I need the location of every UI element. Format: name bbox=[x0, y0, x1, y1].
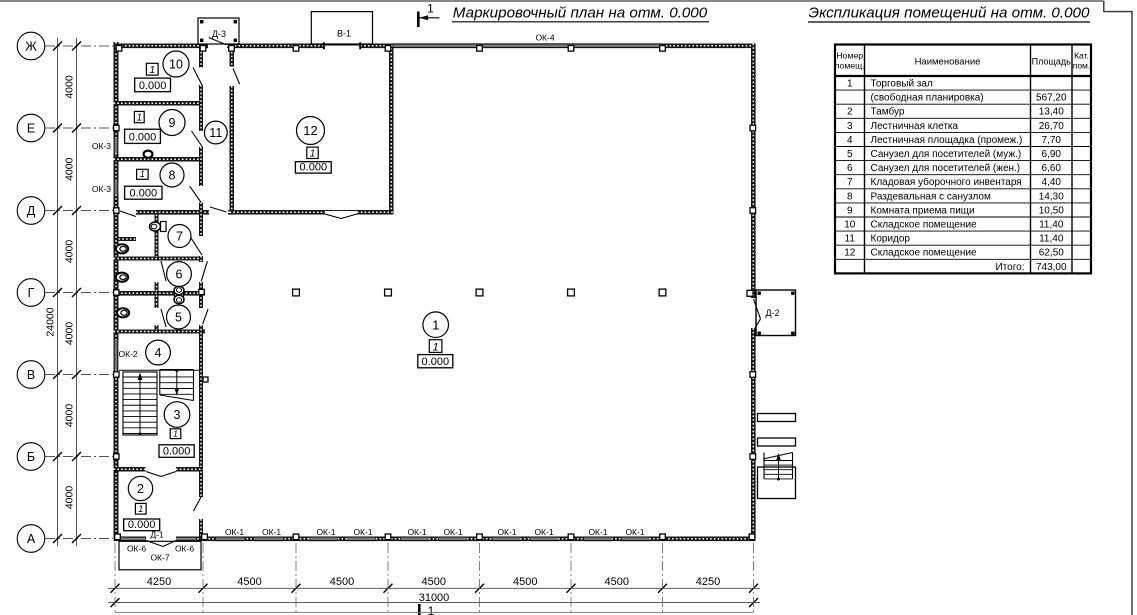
svg-text:Санузел для посетителей (муж.): Санузел для посетителей (муж.) bbox=[871, 149, 1022, 160]
svg-text:6: 6 bbox=[176, 268, 183, 282]
svg-text:1: 1 bbox=[428, 604, 435, 615]
svg-text:Санузел для посетителей (жен.): Санузел для посетителей (жен.) bbox=[871, 163, 1021, 174]
svg-text:1: 1 bbox=[310, 148, 316, 159]
svg-text:5: 5 bbox=[847, 149, 853, 160]
svg-text:ОК-1: ОК-1 bbox=[316, 527, 335, 537]
svg-text:Д-3: Д-3 bbox=[212, 29, 226, 39]
svg-text:ОК-1: ОК-1 bbox=[625, 527, 644, 537]
svg-text:62,50: 62,50 bbox=[1039, 248, 1064, 259]
svg-text:ОК-1: ОК-1 bbox=[353, 527, 372, 537]
svg-text:0.000: 0.000 bbox=[163, 446, 191, 458]
svg-text:3: 3 bbox=[847, 121, 853, 132]
svg-text:4000: 4000 bbox=[64, 322, 76, 346]
svg-text:4: 4 bbox=[847, 135, 853, 146]
svg-text:1: 1 bbox=[432, 341, 438, 353]
svg-text:13,40: 13,40 bbox=[1039, 107, 1064, 118]
svg-text:Кат.: Кат. bbox=[1074, 51, 1089, 61]
svg-text:1: 1 bbox=[173, 429, 178, 439]
svg-text:4500: 4500 bbox=[513, 576, 537, 588]
svg-text:9: 9 bbox=[847, 205, 853, 216]
svg-text:Складское помещение: Складское помещение bbox=[871, 220, 978, 231]
svg-text:7,70: 7,70 bbox=[1042, 135, 1062, 146]
svg-text:14,30: 14,30 bbox=[1039, 191, 1064, 202]
svg-text:11,40: 11,40 bbox=[1039, 234, 1064, 245]
svg-text:4: 4 bbox=[155, 346, 162, 360]
svg-text:4,40: 4,40 bbox=[1042, 177, 1062, 188]
svg-text:ОК-1: ОК-1 bbox=[497, 527, 516, 537]
svg-text:ОК-4: ОК-4 bbox=[535, 33, 554, 43]
svg-text:ОК-2: ОК-2 bbox=[119, 349, 138, 359]
svg-text:Г: Г bbox=[28, 286, 35, 300]
svg-text:ОК-1: ОК-1 bbox=[588, 527, 607, 537]
svg-text:5: 5 bbox=[175, 311, 182, 325]
svg-text:31000: 31000 bbox=[419, 592, 450, 604]
svg-text:Е: Е bbox=[27, 121, 35, 135]
svg-text:1: 1 bbox=[427, 2, 434, 16]
svg-text:Маркировочный план на отм. 0.0: Маркировочный план на отм. 0.000 bbox=[453, 5, 708, 22]
svg-text:3: 3 bbox=[174, 408, 181, 422]
svg-text:6: 6 bbox=[847, 163, 853, 174]
svg-text:Лестничная клетка: Лестничная клетка bbox=[871, 121, 959, 132]
svg-text:Д-2: Д-2 bbox=[765, 308, 779, 318]
svg-text:4000: 4000 bbox=[64, 157, 76, 181]
svg-text:ОК-1: ОК-1 bbox=[262, 527, 281, 537]
svg-text:Кладовая уборочного инвентаря: Кладовая уборочного инвентаря bbox=[871, 176, 1022, 188]
svg-text:2: 2 bbox=[847, 107, 853, 118]
svg-text:Экспликация помещений на отм.: Экспликация помещений на отм. 0.000 bbox=[809, 5, 1090, 22]
svg-text:1: 1 bbox=[432, 317, 439, 332]
svg-text:4500: 4500 bbox=[237, 576, 261, 588]
svg-text:8: 8 bbox=[169, 169, 176, 183]
svg-text:4000: 4000 bbox=[64, 486, 76, 510]
svg-text:0.000: 0.000 bbox=[300, 161, 328, 173]
svg-text:0.000: 0.000 bbox=[422, 356, 450, 368]
svg-text:ОК-3: ОК-3 bbox=[92, 184, 111, 194]
svg-text:ОК-1: ОК-1 bbox=[225, 527, 244, 537]
svg-text:Торговый зал: Торговый зал bbox=[871, 79, 933, 90]
svg-text:1: 1 bbox=[137, 113, 143, 124]
svg-text:ОК-1: ОК-1 bbox=[407, 527, 426, 537]
svg-text:12: 12 bbox=[303, 123, 317, 138]
svg-text:Наименование: Наименование bbox=[915, 57, 981, 68]
svg-text:4250: 4250 bbox=[696, 576, 720, 588]
svg-text:Д-1: Д-1 bbox=[150, 530, 164, 540]
svg-text:7: 7 bbox=[847, 177, 853, 188]
svg-text:6,60: 6,60 bbox=[1042, 163, 1062, 174]
svg-text:4000: 4000 bbox=[64, 404, 76, 428]
svg-text:Ж: Ж bbox=[25, 39, 37, 53]
svg-text:567,20: 567,20 bbox=[1036, 93, 1067, 104]
svg-text:12: 12 bbox=[844, 248, 856, 259]
svg-text:1: 1 bbox=[149, 65, 155, 76]
svg-text:Площадь: Площадь bbox=[1032, 57, 1071, 67]
svg-text:Лестничная площадка (промеж.): Лестничная площадка (промеж.) bbox=[871, 135, 1023, 146]
svg-text:В: В bbox=[27, 368, 35, 382]
svg-text:10,50: 10,50 bbox=[1039, 205, 1064, 216]
svg-text:Номер: Номер bbox=[836, 51, 863, 61]
svg-text:4500: 4500 bbox=[422, 576, 446, 588]
svg-text:ОК-1: ОК-1 bbox=[443, 527, 462, 537]
svg-text:Складское помещение: Складское помещение bbox=[871, 248, 978, 259]
svg-text:Итого:: Итого: bbox=[996, 262, 1025, 273]
svg-text:10: 10 bbox=[169, 58, 183, 72]
svg-text:0.000: 0.000 bbox=[130, 187, 158, 199]
svg-text:10: 10 bbox=[844, 220, 856, 231]
svg-text:помещ.: помещ. bbox=[835, 61, 865, 71]
svg-text:0.000: 0.000 bbox=[129, 132, 157, 144]
svg-text:Тамбур: Тамбур bbox=[871, 106, 905, 118]
svg-text:4250: 4250 bbox=[147, 576, 171, 588]
svg-text:В-1: В-1 bbox=[337, 29, 351, 39]
svg-text:Д: Д bbox=[27, 204, 36, 218]
svg-text:26,70: 26,70 bbox=[1039, 121, 1064, 132]
svg-text:ОК-1: ОК-1 bbox=[534, 527, 553, 537]
svg-text:11: 11 bbox=[209, 126, 222, 140]
svg-text:Комната приема пищи: Комната приема пищи bbox=[871, 205, 975, 216]
svg-text:1: 1 bbox=[138, 503, 143, 514]
svg-text:1: 1 bbox=[847, 79, 853, 90]
svg-text:6,90: 6,90 bbox=[1042, 149, 1062, 160]
svg-text:8: 8 bbox=[847, 191, 853, 202]
svg-text:11: 11 bbox=[845, 234, 856, 245]
svg-text:(свободная планировка): (свободная планировка) bbox=[871, 92, 984, 104]
svg-text:9: 9 bbox=[169, 116, 176, 130]
svg-text:ОК-6: ОК-6 bbox=[127, 544, 146, 554]
svg-text:743,00: 743,00 bbox=[1036, 262, 1067, 273]
svg-text:24000: 24000 bbox=[45, 307, 57, 336]
svg-text:2: 2 bbox=[137, 482, 144, 496]
svg-text:Раздевальная с санузлом: Раздевальная с санузлом bbox=[871, 191, 991, 202]
svg-text:1: 1 bbox=[140, 169, 145, 179]
svg-text:4000: 4000 bbox=[64, 240, 76, 264]
svg-text:11,40: 11,40 bbox=[1039, 220, 1064, 231]
svg-text:ОК-7: ОК-7 bbox=[150, 553, 169, 563]
svg-text:4500: 4500 bbox=[605, 576, 629, 588]
svg-text:Б: Б bbox=[27, 450, 35, 464]
svg-text:А: А bbox=[27, 532, 36, 546]
svg-text:ОК-6: ОК-6 bbox=[175, 544, 194, 554]
svg-text:пом.: пом. bbox=[1073, 61, 1091, 71]
svg-text:Коридор: Коридор bbox=[871, 234, 911, 245]
svg-text:4000: 4000 bbox=[64, 75, 76, 99]
svg-text:ОК-3: ОК-3 bbox=[92, 141, 111, 151]
svg-text:4500: 4500 bbox=[330, 576, 354, 588]
svg-text:7: 7 bbox=[176, 230, 183, 244]
svg-text:0.000: 0.000 bbox=[139, 80, 167, 92]
